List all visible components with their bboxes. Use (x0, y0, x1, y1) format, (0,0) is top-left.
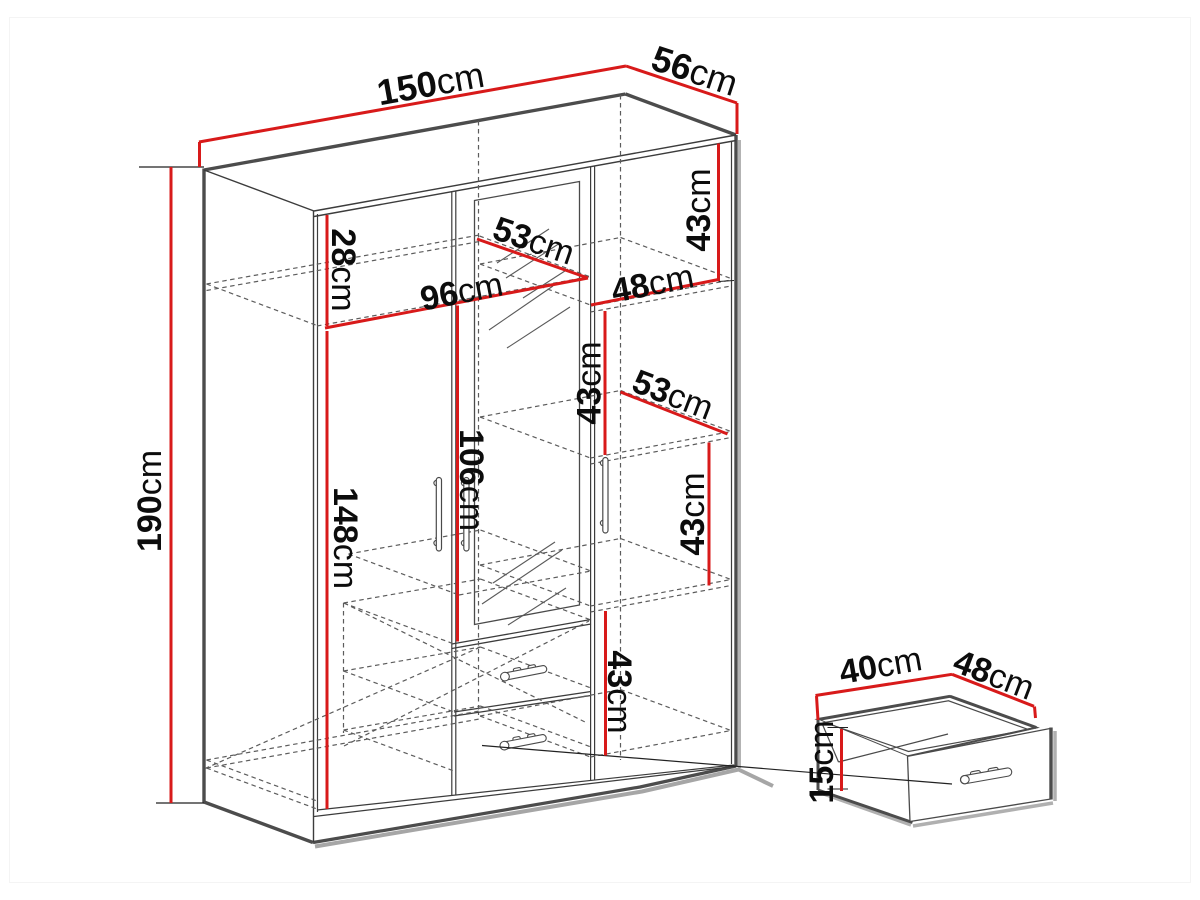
svg-text:190cm: 190cm (131, 450, 169, 552)
svg-text:43cm: 43cm (600, 650, 638, 733)
svg-text:28cm: 28cm (324, 228, 362, 311)
svg-text:43cm: 43cm (570, 341, 608, 424)
svg-text:43cm: 43cm (674, 472, 712, 555)
svg-text:15cm: 15cm (803, 720, 841, 803)
svg-text:148cm: 148cm (326, 487, 364, 589)
svg-text:43cm: 43cm (680, 168, 718, 251)
svg-text:106cm: 106cm (452, 429, 490, 531)
